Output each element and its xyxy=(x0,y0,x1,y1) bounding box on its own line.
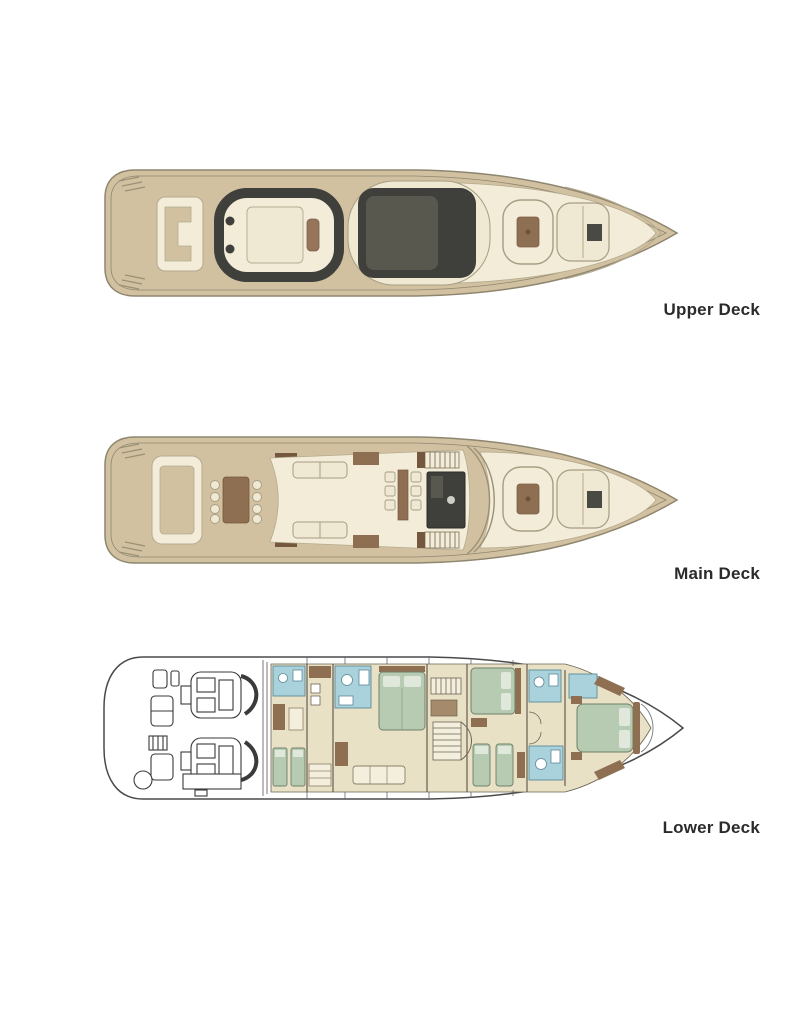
cockpit-dining-table xyxy=(211,477,262,524)
upper-deck-plan xyxy=(95,163,685,303)
upper-deck-drawing xyxy=(95,163,685,303)
stairs-port xyxy=(417,452,459,468)
aft-deck-sunpad xyxy=(152,456,202,544)
galley-block xyxy=(427,472,465,528)
lower-deck-plan xyxy=(95,652,695,804)
upper-deck-label: Upper Deck xyxy=(664,300,760,320)
bow-sunpad xyxy=(557,203,609,261)
main-deck-plan xyxy=(95,430,685,570)
lower-deck-label: Lower Deck xyxy=(663,818,760,838)
bow-seating xyxy=(503,467,553,531)
stairs-starboard xyxy=(417,532,459,548)
aft-sunpad xyxy=(157,197,203,271)
main-deck-drawing xyxy=(95,430,685,570)
bow-seating xyxy=(503,200,553,264)
sunroof-inner xyxy=(366,196,438,270)
lower-deck-drawing xyxy=(95,652,695,804)
bow-sunpad xyxy=(557,470,609,528)
flybridge-lounge xyxy=(219,193,339,277)
deck-plan-page: { "page": { "background": "#ffffff" }, "… xyxy=(0,0,800,1036)
main-deck-label: Main Deck xyxy=(674,564,760,584)
